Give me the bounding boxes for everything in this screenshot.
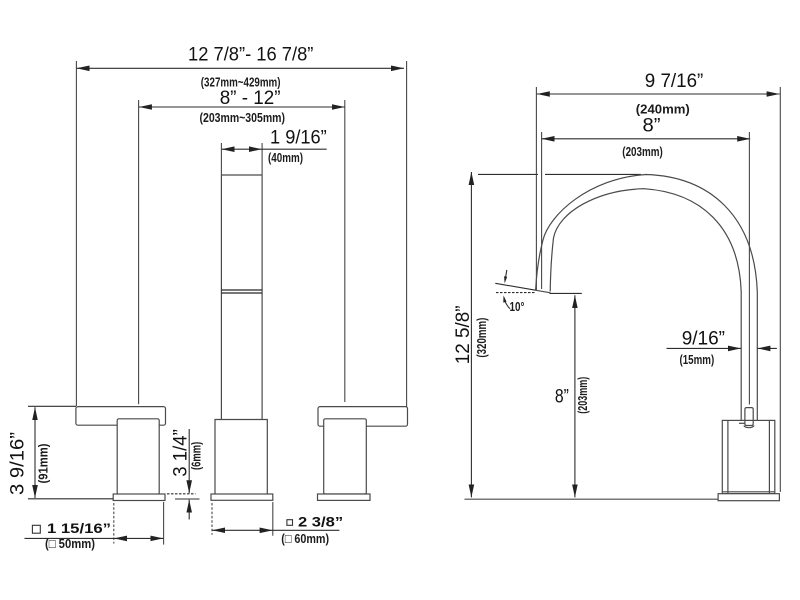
svg-text:2 3/8”: 2 3/8” <box>298 513 343 529</box>
svg-text:(□ 50mm): (□ 50mm) <box>45 536 95 551</box>
svg-text:12 7/8”- 16 7/8”: 12 7/8”- 16 7/8” <box>188 44 313 65</box>
svg-text:(6mm): (6mm) <box>189 442 204 470</box>
svg-text:8” - 12”: 8” - 12” <box>220 88 281 109</box>
svg-text:(15mm): (15mm) <box>680 352 715 367</box>
svg-text:8”: 8” <box>643 116 661 137</box>
svg-text:(203mm): (203mm) <box>575 377 590 414</box>
svg-text:(320mm): (320mm) <box>474 318 489 358</box>
svg-text:1 9/16”: 1 9/16” <box>270 127 327 148</box>
svg-text:10°: 10° <box>510 299 525 314</box>
svg-text:(203mm~305mm): (203mm~305mm) <box>200 110 286 125</box>
svg-text:(□ 60mm): (□ 60mm) <box>281 531 329 546</box>
svg-text:(240mm): (240mm) <box>636 102 690 117</box>
svg-text:(91mm): (91mm) <box>36 444 51 484</box>
svg-text:1 15/16”: 1 15/16” <box>47 520 111 536</box>
svg-text:3 9/16”: 3 9/16” <box>8 432 29 495</box>
svg-text:(203mm): (203mm) <box>622 144 663 159</box>
svg-text:9/16”: 9/16” <box>682 328 725 349</box>
svg-text:9 7/16”: 9 7/16” <box>645 71 704 92</box>
svg-text:(40mm): (40mm) <box>268 150 303 165</box>
svg-text:8”: 8” <box>555 387 569 408</box>
svg-text:12 5/8”: 12 5/8” <box>453 305 474 364</box>
